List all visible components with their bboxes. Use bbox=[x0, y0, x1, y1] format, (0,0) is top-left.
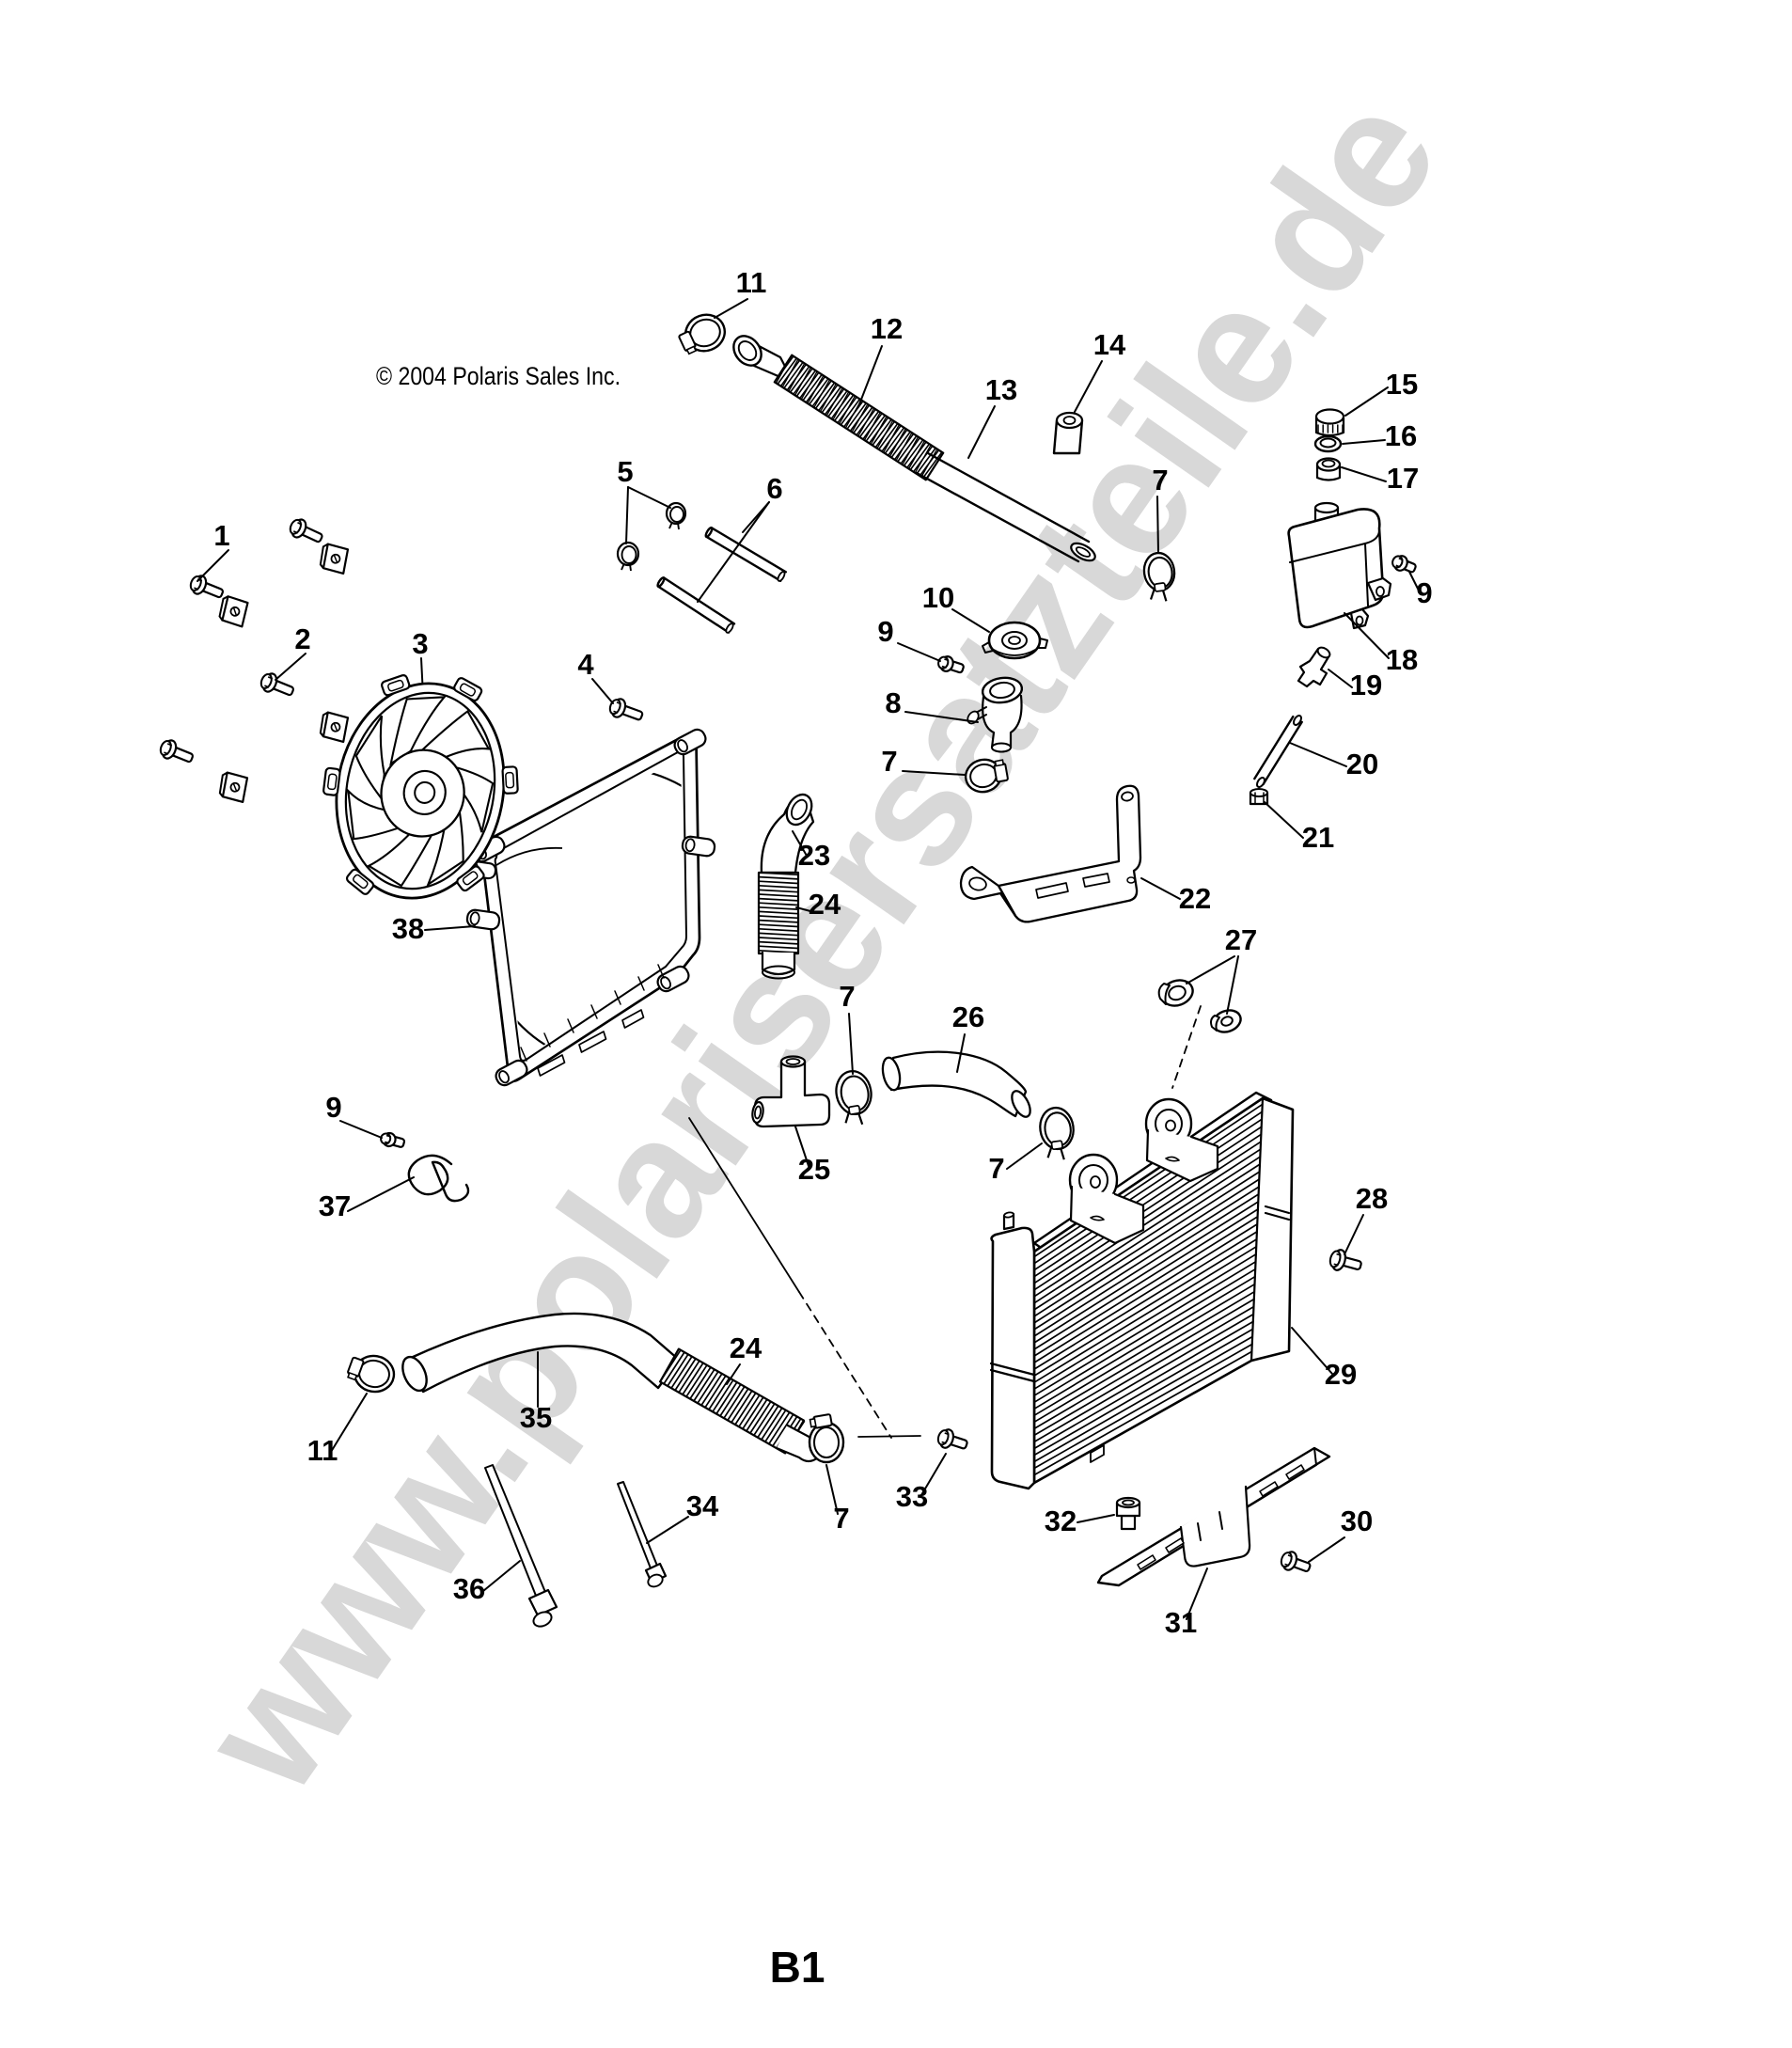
svg-text:28: 28 bbox=[1356, 1182, 1388, 1215]
svg-text:14: 14 bbox=[1093, 328, 1126, 361]
svg-text:9: 9 bbox=[1416, 576, 1432, 609]
svg-text:2: 2 bbox=[294, 622, 310, 655]
svg-text:34: 34 bbox=[686, 1489, 719, 1522]
svg-text:B1: B1 bbox=[770, 1943, 825, 1992]
svg-text:19: 19 bbox=[1350, 669, 1382, 701]
svg-text:37: 37 bbox=[319, 1189, 351, 1222]
svg-text:5: 5 bbox=[617, 455, 633, 488]
svg-text:7: 7 bbox=[1152, 464, 1168, 496]
svg-text:25: 25 bbox=[798, 1153, 830, 1186]
svg-text:9: 9 bbox=[325, 1091, 341, 1124]
svg-text:31: 31 bbox=[1165, 1606, 1197, 1639]
svg-text:32: 32 bbox=[1045, 1504, 1077, 1537]
svg-text:24: 24 bbox=[730, 1331, 762, 1364]
svg-text:29: 29 bbox=[1325, 1358, 1357, 1391]
svg-text:7: 7 bbox=[839, 980, 855, 1013]
svg-text:22: 22 bbox=[1179, 882, 1211, 915]
svg-text:6: 6 bbox=[766, 472, 782, 505]
svg-text:1: 1 bbox=[213, 519, 229, 552]
svg-text:33: 33 bbox=[896, 1480, 928, 1513]
svg-text:11: 11 bbox=[736, 266, 767, 299]
svg-text:35: 35 bbox=[520, 1401, 552, 1434]
svg-text:36: 36 bbox=[453, 1572, 485, 1605]
svg-text:20: 20 bbox=[1346, 748, 1378, 780]
svg-text:38: 38 bbox=[392, 912, 424, 945]
svg-text:4: 4 bbox=[577, 648, 594, 681]
svg-text:7: 7 bbox=[881, 745, 897, 778]
svg-text:10: 10 bbox=[922, 581, 954, 614]
svg-text:18: 18 bbox=[1386, 643, 1418, 676]
svg-text:16: 16 bbox=[1385, 419, 1417, 452]
svg-text:9: 9 bbox=[877, 615, 893, 648]
svg-text:7: 7 bbox=[988, 1152, 1004, 1185]
svg-text:23: 23 bbox=[798, 839, 830, 872]
svg-text:8: 8 bbox=[885, 686, 901, 719]
svg-text:7: 7 bbox=[833, 1502, 849, 1535]
svg-text:13: 13 bbox=[985, 373, 1017, 406]
svg-text:21: 21 bbox=[1302, 821, 1334, 854]
svg-text:27: 27 bbox=[1225, 923, 1257, 956]
svg-text:12: 12 bbox=[871, 312, 903, 345]
svg-text:© 2004 Polaris Sales Inc.: © 2004 Polaris Sales Inc. bbox=[376, 362, 621, 390]
svg-text:3: 3 bbox=[412, 627, 428, 660]
svg-text:26: 26 bbox=[952, 1000, 984, 1033]
svg-text:15: 15 bbox=[1386, 368, 1418, 401]
svg-text:24: 24 bbox=[809, 888, 841, 921]
svg-text:17: 17 bbox=[1387, 462, 1419, 495]
svg-text:30: 30 bbox=[1341, 1504, 1373, 1537]
svg-text:11: 11 bbox=[307, 1434, 338, 1467]
